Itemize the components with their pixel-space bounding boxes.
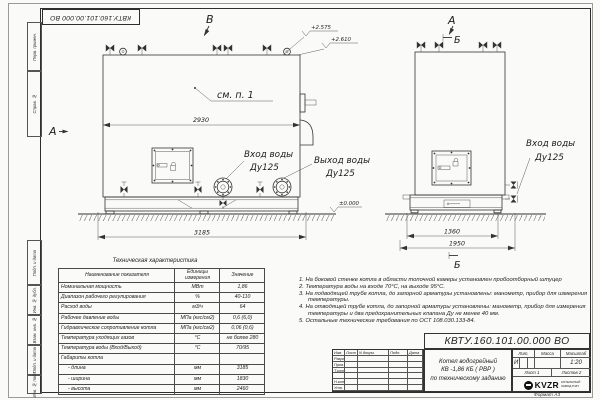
note-line: 5. Остальные технические требования по О… [299,318,591,325]
sheets-total: Листов 2 [552,369,591,377]
spec-value: 1830 [220,374,265,384]
technical-notes: 1. На боковой стенке котла в области топ… [299,277,591,325]
scale-header: Масштаб [561,350,591,358]
bottom-drain-valves-front [121,182,264,197]
arrowhead [204,29,210,36]
spec-name: Расход воды [59,303,175,313]
drawing-sheet: Перв. примен. Справ. № Подп. и дата Инв.… [0,0,600,400]
title-block-product-name: Котел водогрейный КВ -1,86 КБ ( РВР ) по… [424,349,512,392]
boiler-door-side [432,151,471,185]
door-handle-pin [439,167,441,169]
safety-valve-icons-front [106,45,271,56]
spec-value: 1,86 [220,283,265,293]
inlet-label-side: Вход воды [526,139,575,149]
spec-unit: МПа (кгс/см2) [175,313,220,323]
inlet-size-front: Ду125 [249,163,279,173]
dim-3185-group: 3185 [98,212,306,240]
table-row: Температура уходящих газов°Сне более 280 [59,333,265,343]
outlet-size-front: Ду125 [325,169,355,179]
spec-unit: % [175,293,220,303]
spec-unit: °С [175,344,220,354]
water-inlet-connections-side [505,182,518,203]
spec-unit: °С [175,333,220,343]
boiler-body-side [415,52,505,195]
spec-table: Наименование показателя Единицы измерени… [58,268,265,395]
scale-value: 1:20 [561,358,591,369]
see-note-label: см. п. 1 [217,90,254,101]
top-port-center [122,51,124,53]
spec-unit: мм [175,384,220,394]
top-port-icon [120,48,127,55]
spec-unit: мм [175,374,220,384]
spec-unit [175,354,220,364]
spec-unit: МВт [175,283,220,293]
product-line: по техническому заданию [430,376,505,383]
kvzr-logo-icon [524,381,533,390]
spec-value: 3185 [220,364,265,374]
drain-valve-icon [220,196,227,209]
spec-name: - ширина [59,374,175,384]
lit-cell [528,358,535,369]
table-row: Рабочее давление водыМПа (кгс/см2)0,6 (6… [59,313,265,323]
title-block-doc-number: КВТУ.160.101.00.000 ВО [424,333,590,349]
sheet-number: Лист 1 [513,369,552,377]
title-block: КВТУ.160.101.00.000 ВО Изм. Лист N докум… [332,333,590,392]
spec-col-units: Единицы измерения [175,269,220,283]
manufacturer-logo: KVZR КОТЕЛЬНЫЙ ЗАВОД РЭП [513,377,591,393]
note-line: 4. На отводящей трубе котла, до запорной… [299,304,591,318]
frame-label: Инв. № дубл. [32,287,37,313]
outlet-leader [284,164,312,178]
view-marker-a-left: А [48,125,57,138]
inlet-flange-front [214,178,232,196]
frame-label: Инв. № подл. [32,371,37,397]
spec-value: 0,6 (6,0) [220,313,265,323]
outlet-label-front: Выход воды [314,156,370,166]
inlet-leader-side [517,158,530,194]
note-line: 2. Температура воды на входе 70°С, на вы… [299,284,591,291]
spec-value [220,354,265,364]
spec-header-row: Наименование показателя Единицы измерени… [59,269,265,283]
section-marker-b-bottom: Б [454,260,461,271]
spec-name: Номинальная мощность [59,283,175,293]
lit-value: И [513,358,520,369]
product-line: КВ -1,86 КБ ( РВР ) [441,367,495,374]
boiler-drawing: В +2.575 +2.610 см. п. 1 2930 [40,8,590,272]
spec-name: - высота [59,384,175,394]
spec-value: 2460 [220,384,265,394]
title-block-revision-table: Изм. Лист N докум. Подп. Дата Разраб. Пр… [332,349,424,392]
dim-3185: 3185 [194,230,210,237]
logo-sub-line: ЗАВОД РЭП [561,385,580,389]
lit-header: Лит. [513,350,535,358]
arrowhead [63,130,69,134]
table-row: - длинамм3185 [59,364,265,374]
table-row: - высотамм2460 [59,384,265,394]
support-frame-side [403,195,509,213]
table-row: Гидравлическое сопротивление котлаМПа (к… [59,323,265,333]
lit-cell [520,358,527,369]
spec-unit: мм [175,364,220,374]
dim-1360-group: 1360 [407,213,498,239]
title-block-right: Лит. Масса Масштаб И 1:20 Лист 1 Листов … [512,349,590,392]
boiler-door-front [152,148,193,183]
table-row: Номинальная мощностьМВт1,86 [59,283,265,293]
section-marker-b-top: Б [454,35,461,46]
spec-name: Габариты котла [59,354,175,364]
elevation-2610: +2.610 [331,37,352,43]
table-row: Расход водым3/ч64 [59,303,265,313]
spec-col-name: Наименование показателя [59,269,175,283]
spec-value: 0,06 (0,6) [220,323,265,333]
elevation-2575: +2.575 [311,25,332,31]
spec-name: Температура уходящих газов [59,333,175,343]
elevation-symbol [322,43,330,48]
spec-name: Гидравлическое сопротивление котла [59,323,175,333]
spec-col-value: Значение [220,269,265,283]
spec-unit: МПа (кгс/см2) [175,323,220,333]
product-line: Котел водогрейный [439,359,497,366]
outlet-flange-front [273,178,291,196]
dim-1950: 1950 [449,241,465,248]
frame-cell-inv-dubl: Инв. № дубл. [27,284,42,316]
inlet-size-side: Ду125 [534,153,564,163]
boiler-body-front [103,55,300,197]
elevation-zero: ±0.000 [339,201,360,207]
frame-label: Перв. примен. [32,33,37,61]
elevation-symbol [330,207,338,212]
view-marker-v: В [206,13,214,26]
frame-label: Справ. № [32,94,37,114]
spec-table-title: Техническая характеристика [58,258,252,264]
inlet-label-front: Вход воды [244,150,293,160]
spec-value: 64 [220,303,265,313]
door-bolts [433,152,471,185]
boiler-side-view: А Б [385,14,575,271]
dim-1360: 1360 [444,229,460,236]
note-line: 1. На боковой стенке котла в области топ… [299,277,591,284]
frame-label: Подп. и дата [32,347,37,373]
support-frame-front [105,197,298,214]
elevation-symbol [302,31,310,36]
table-row: Габариты котла [59,354,265,364]
spec-name: Температура воды (Вход/Выход) [59,344,175,354]
spec-value: 40-110 [220,293,265,303]
arrowhead [449,28,454,35]
spec-unit: м3/ч [175,303,220,313]
frame-cell-inv-podl: Инв. № подл. [27,374,42,394]
role-label: Утв. [333,385,345,391]
flue-outlet [300,94,316,145]
frame-label: Подп. и дата [32,250,37,276]
table-row: Температура воды (Вход/Выход)°С70/95 [59,344,265,354]
note-line: 3. На подводящей трубе котла, до запорно… [299,291,591,305]
dim-2930: 2930 [193,117,209,124]
table-row: - ширинамм1830 [59,374,265,384]
kvzr-logo-subtitle: КОТЕЛЬНЫЙ ЗАВОД РЭП [561,381,580,388]
frame-cell-vzam-inv: Взам. инв. № [27,314,42,346]
frame-label: Взам. инв. № [32,317,37,343]
view-marker-a-top: А [447,14,456,27]
door-handle-pin [158,164,160,166]
spec-name: Рабочее давление воды [59,313,175,323]
mass-value [535,358,561,369]
mass-header: Масса [535,350,561,358]
door-lock-icon [453,158,458,166]
inlet-leader [226,161,244,179]
door-lock-icon [171,162,176,170]
spec-name: Диапазон рабочего регулирования [59,293,175,303]
boiler-front-view: В +2.575 +2.610 см. п. 1 2930 [48,13,370,240]
spec-name: - длина [59,364,175,374]
spec-value: не более 280 [220,333,265,343]
format-label: Формат А3 [505,393,589,398]
kvzr-logo-text: KVZR [535,380,559,390]
spec-value: 70/95 [220,344,265,354]
table-row: Диапазон рабочего регулирования%40-110 [59,293,265,303]
